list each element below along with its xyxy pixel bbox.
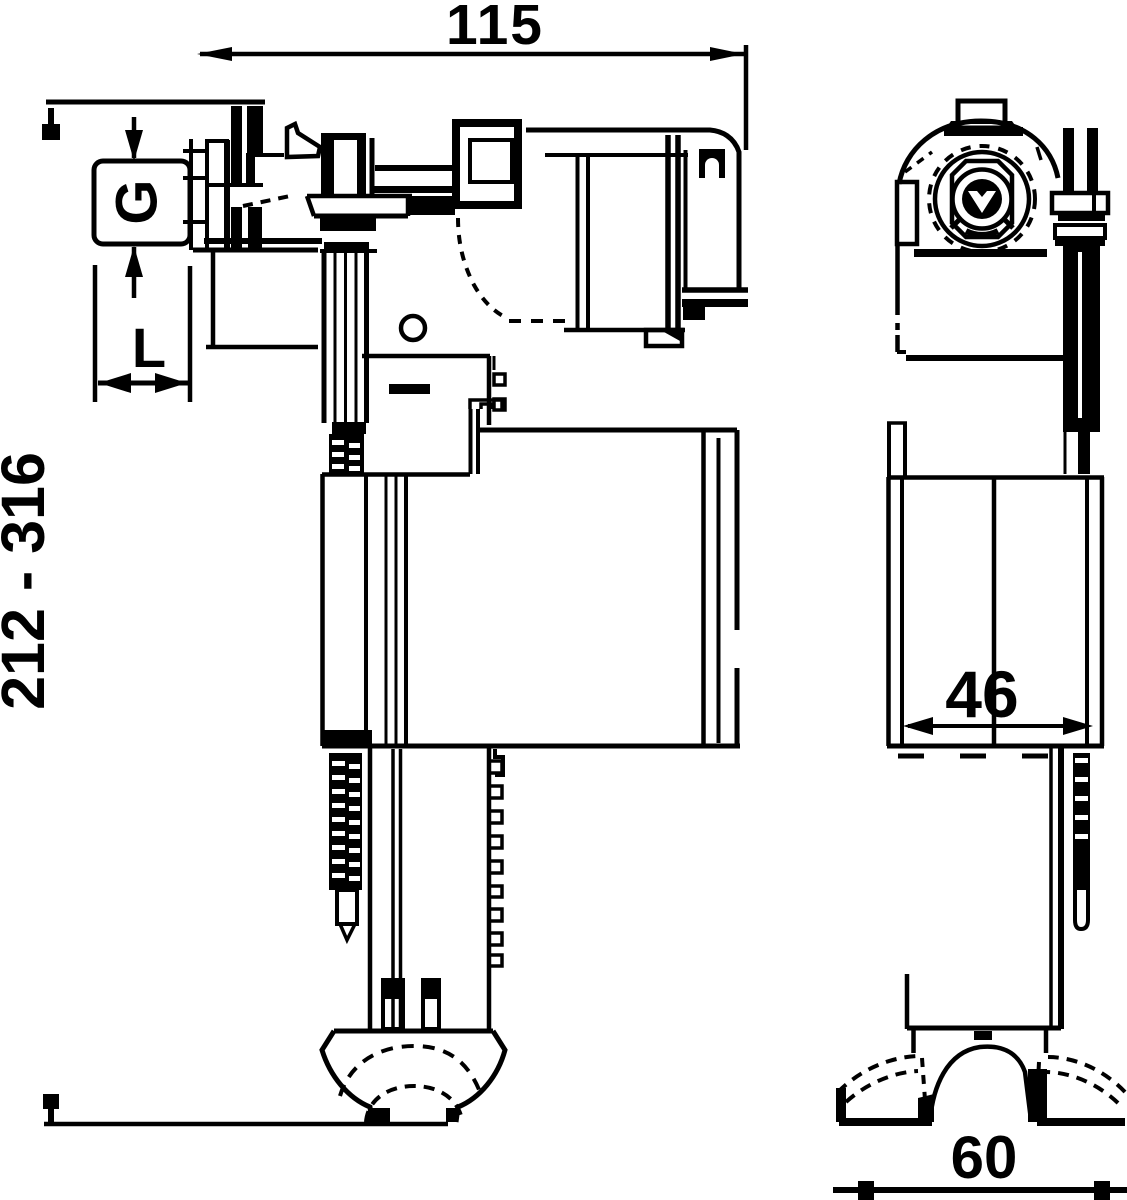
svg-text:115: 115: [446, 0, 544, 57]
svg-text:G: G: [105, 179, 170, 224]
svg-text:L: L: [132, 316, 166, 379]
svg-text:212 - 316: 212 - 316: [0, 452, 57, 710]
svg-text:60: 60: [951, 1124, 1018, 1191]
svg-text:46: 46: [945, 657, 1018, 731]
